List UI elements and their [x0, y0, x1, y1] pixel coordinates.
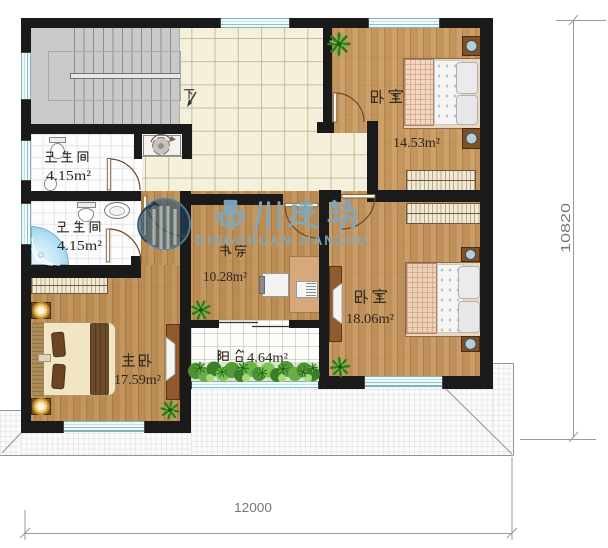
svg-text:10820: 10820: [558, 203, 573, 253]
svg-text:4.15m²: 4.15m²: [57, 239, 102, 254]
svg-text:4.64m²: 4.64m²: [247, 350, 288, 365]
svg-text:12000: 12000: [234, 500, 272, 515]
svg-text:14.53m²: 14.53m²: [393, 135, 440, 150]
svg-text:4.15m²: 4.15m²: [46, 169, 91, 184]
svg-text:17.59m²: 17.59m²: [114, 372, 161, 387]
svg-text:DINGCHUAN JIANZHU: DINGCHUAN JIANZHU: [196, 233, 368, 248]
svg-text:10.28m²: 10.28m²: [203, 269, 247, 284]
svg-text:18.06m²: 18.06m²: [346, 311, 394, 326]
